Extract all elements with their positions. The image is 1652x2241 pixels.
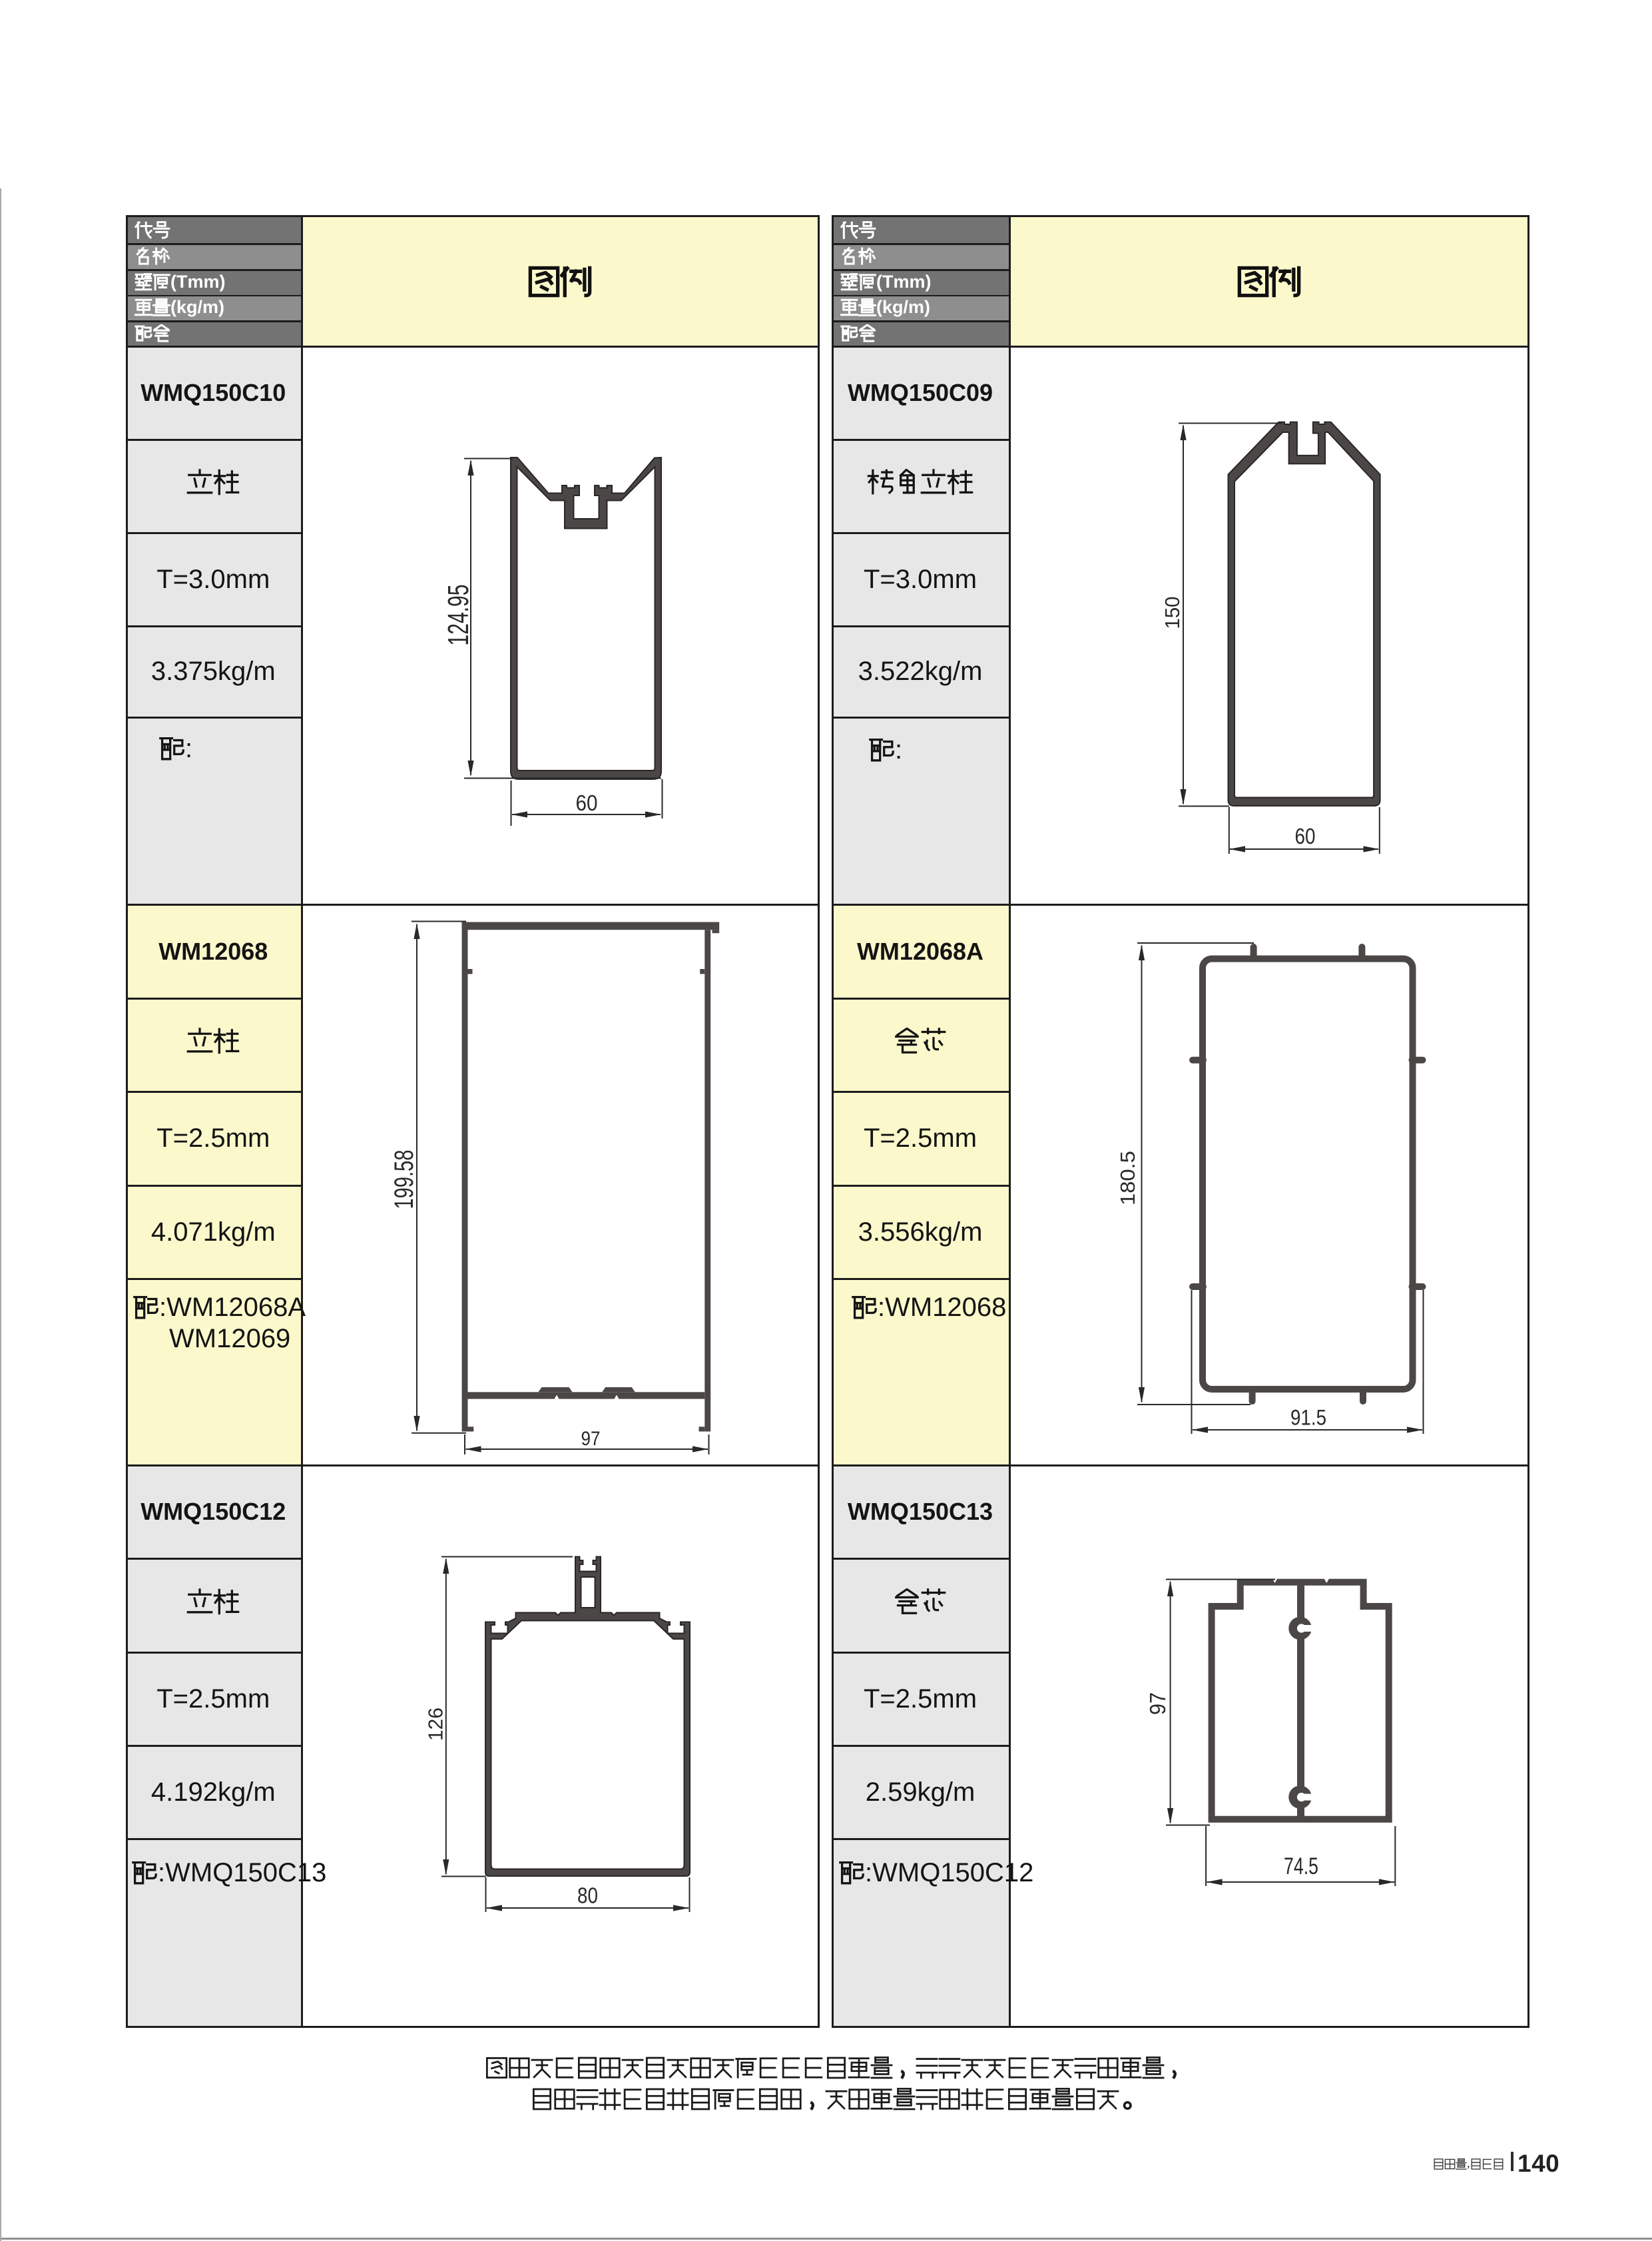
svg-text:97: 97 xyxy=(1145,1692,1170,1715)
svg-text:180.5: 180.5 xyxy=(1116,1151,1139,1205)
svg-text:97: 97 xyxy=(581,1428,601,1450)
svg-text:124.95: 124.95 xyxy=(442,585,475,646)
svg-text:80: 80 xyxy=(577,1883,598,1908)
svg-text:150: 150 xyxy=(1161,597,1184,629)
svg-text:60: 60 xyxy=(1295,824,1316,848)
svg-text:74.5: 74.5 xyxy=(1284,1853,1318,1879)
svg-text:199.58: 199.58 xyxy=(390,1150,419,1209)
svg-text:60: 60 xyxy=(576,791,598,815)
svg-text:126: 126 xyxy=(424,1708,447,1741)
svg-text:91.5: 91.5 xyxy=(1290,1406,1326,1430)
